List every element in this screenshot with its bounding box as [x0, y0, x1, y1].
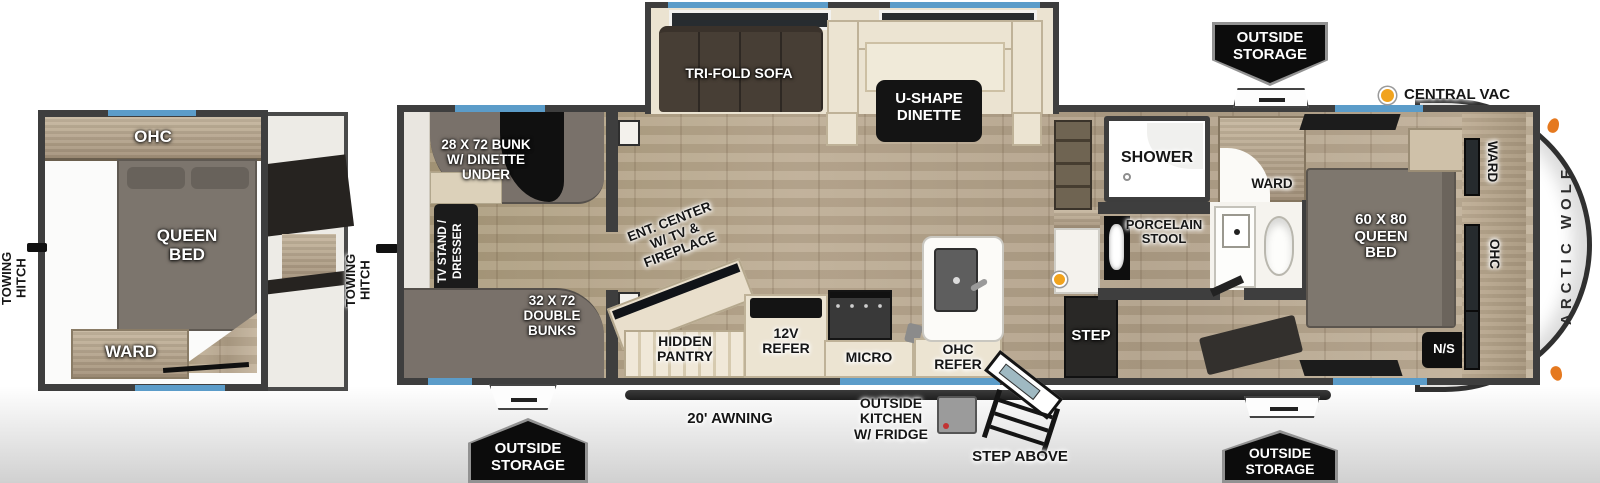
- left-plan-annex: [268, 112, 348, 391]
- door-handle: [1259, 98, 1285, 102]
- porcelain-stool-label: PORCELAIN STOOL: [1120, 218, 1208, 247]
- storage-door: [1233, 88, 1309, 108]
- front-wardrobe-wall: WARD OHC: [1462, 112, 1526, 378]
- outside-storage-top-label: OUTSIDE STORAGE: [1212, 29, 1328, 64]
- outside-storage-badge-bottom-left: OUTSIDE STORAGE: [468, 418, 588, 483]
- hidden-pantry-label: HIDDEN PANTRY: [624, 334, 746, 365]
- wall-accent: [455, 105, 545, 112]
- 12v-refer-label: 12V REFER: [746, 326, 826, 357]
- bunkroom-wall-top: [606, 112, 618, 232]
- shower: SHOWER: [1104, 116, 1210, 202]
- left-queen-bed-label: QUEEN BED: [137, 227, 237, 264]
- kitchen-island: [922, 236, 1004, 342]
- bath-ward-label: WARD: [1242, 177, 1302, 192]
- left-hitch-icon: [27, 243, 47, 252]
- central-vac-legend-icon: [1379, 87, 1396, 104]
- sink-icon: [934, 248, 978, 312]
- dinette-label-plate: U-SHAPE DINETTE: [876, 80, 982, 142]
- left-ohc-label: OHC: [113, 128, 193, 147]
- shower-drain-icon: [1123, 173, 1131, 181]
- main-body: 28 X 72 BUNK W/ DINETTE UNDER TV STAND /…: [397, 105, 1540, 385]
- queen-bed: 60 X 80 QUEEN BED: [1306, 168, 1456, 328]
- sofa-label: TRI-FOLD SOFA: [659, 66, 819, 81]
- shower-label: SHOWER: [1109, 149, 1205, 167]
- tv-stand-dresser: TV STAND / DRESSER: [434, 204, 478, 298]
- floorplan-canvas: OHC QUEEN BED WARD TOWING HITCH ARCTIC W…: [0, 0, 1600, 483]
- bunk-label: 28 X 72 BUNK W/ DINETTE UNDER: [418, 138, 554, 183]
- micro-label: MICRO: [824, 350, 914, 365]
- night-stand-label: N/S: [1422, 342, 1466, 356]
- bedroom-rug: [1199, 315, 1303, 376]
- vanity-drain-icon: [1234, 229, 1240, 235]
- front-ohc-label: OHC: [1486, 222, 1501, 286]
- door-handle: [1270, 407, 1298, 411]
- front-ward-label: WARD: [1484, 126, 1499, 198]
- central-vac-label: CENTRAL VAC: [1404, 87, 1510, 104]
- step-above-label: STEP ABOVE: [962, 449, 1078, 466]
- tri-fold-sofa: TRI-FOLD SOFA: [659, 26, 823, 112]
- main-hitch-icon: [376, 244, 398, 253]
- door-handle: [511, 398, 537, 402]
- bed-headboard: [1442, 170, 1454, 326]
- wall-accent: [840, 378, 1000, 385]
- left-plan-top-accent: [108, 110, 196, 116]
- left-queen-bed: QUEEN BED: [117, 159, 257, 331]
- slide-out: TRI-FOLD SOFA: [645, 2, 1059, 114]
- counter-end: [1054, 210, 1100, 228]
- wardrobe-door: [1464, 224, 1480, 312]
- outside-kitchen-fridge: [937, 396, 977, 434]
- outside-storage-badge-top: OUTSIDE STORAGE: [1212, 22, 1328, 86]
- double-bunks-label: 32 X 72 DOUBLE BUNKS: [504, 294, 600, 339]
- left-ward-label: WARD: [79, 343, 183, 362]
- left-plan-body: OHC QUEEN BED WARD: [38, 110, 268, 391]
- bedroom-ohc-cabinet: [1408, 128, 1464, 172]
- 12v-refer: 12V REFER: [744, 294, 828, 378]
- vanity: [1214, 206, 1256, 288]
- dinette-bench-right: [1011, 20, 1043, 114]
- slide-accent: [890, 2, 1040, 8]
- wall-accent: [1335, 105, 1423, 112]
- roof-vent-icon: [1299, 360, 1402, 376]
- cooktop: [828, 290, 892, 340]
- awning-label: 20' AWNING: [665, 411, 795, 428]
- main-towing-hitch-label: TOWING HITCH: [344, 240, 380, 320]
- pillow: [127, 167, 185, 189]
- ward-door-swing: [1220, 148, 1270, 202]
- awning-bar: [625, 390, 1331, 400]
- storage-door: [1244, 396, 1320, 418]
- ground-gradient: [0, 386, 1600, 483]
- fridge-light-icon: [943, 423, 949, 429]
- entry-step-platform: STEP: [1064, 296, 1118, 378]
- brand-name: ARCTIC WOLF: [1558, 165, 1575, 325]
- wardrobe-door: [1464, 310, 1480, 370]
- step-label: STEP: [1066, 328, 1116, 345]
- storage-door: [489, 384, 557, 410]
- linen-cabinet: [1054, 112, 1100, 294]
- roof-vent-icon: [1299, 114, 1400, 130]
- tv-stand-label: TV STAND / DRESSER: [436, 206, 476, 296]
- outside-storage-bottom-left-label: OUTSIDE STORAGE: [468, 440, 588, 475]
- bath-ward: WARD: [1218, 116, 1306, 202]
- wall-accent: [1333, 378, 1427, 385]
- refer-lid: [750, 298, 822, 318]
- marker-light-icon: [1546, 117, 1561, 135]
- wall-accent: [428, 378, 472, 385]
- marker-light-icon: [1549, 365, 1564, 383]
- outside-storage-badge-bottom-right: OUTSIDE STORAGE: [1222, 430, 1338, 483]
- dinette-bench-ext: [1012, 112, 1042, 146]
- outside-kitchen-label: OUTSIDE KITCHEN W/ FRIDGE: [848, 396, 934, 442]
- vanity-sink-icon: [1222, 214, 1250, 248]
- central-vac-icon: [1052, 272, 1067, 287]
- outside-storage-bottom-right-label: OUTSIDE STORAGE: [1222, 445, 1338, 477]
- dinette-bench-left: [827, 20, 859, 114]
- dinette-label: U-SHAPE DINETTE: [876, 91, 982, 124]
- left-plan-bottom-accent: [135, 385, 225, 391]
- toilet-icon: [1264, 216, 1294, 276]
- wall-cap: [618, 120, 640, 146]
- bath-bottom-wall-left: [1098, 288, 1220, 300]
- wardrobe-door: [1464, 138, 1480, 196]
- slide-accent: [668, 2, 828, 8]
- bath-bottom-wall-right: [1244, 288, 1312, 300]
- pillow: [191, 167, 249, 189]
- dinette-bench-ext: [826, 112, 858, 146]
- queen-bed-label: 60 X 80 QUEEN BED: [1326, 212, 1436, 262]
- linen-drawers: [1054, 120, 1092, 210]
- drain-icon: [953, 277, 960, 284]
